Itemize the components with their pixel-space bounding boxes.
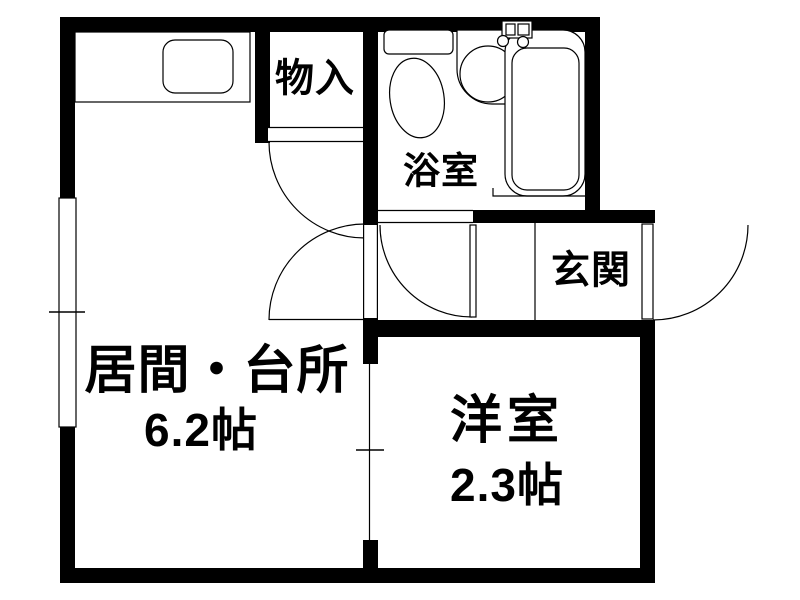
partition-living-western — [356, 364, 384, 540]
living-room-door-swing-arc — [269, 224, 365, 320]
wall-right-lower — [640, 320, 655, 568]
bathtub-outer — [505, 30, 585, 196]
faucet-handle-left — [498, 36, 509, 47]
label-entrance: 玄関 — [551, 252, 631, 291]
front-door-swing-arc — [653, 225, 748, 320]
bathroom-door-swing-arc — [380, 225, 472, 317]
wall-left-upper — [60, 17, 75, 198]
floor-plan-drawing — [0, 0, 800, 600]
wall-western-left-lower-stub — [363, 540, 378, 568]
faucet-handle-right — [518, 37, 529, 48]
wall-storage-left — [255, 32, 270, 143]
wall-center-partition — [363, 32, 378, 225]
wall-entrance-top — [473, 210, 655, 223]
wall-western-top — [363, 320, 655, 337]
toilet — [384, 30, 453, 142]
storage-door-frame — [268, 127, 363, 142]
window-left-wall — [49, 198, 85, 427]
label-storage: 物入 — [275, 60, 355, 99]
wall-left-lower — [60, 427, 75, 583]
label-living-kitchen-area: 6.2帖 — [144, 407, 258, 453]
wall-bathroom-right — [585, 17, 600, 210]
label-western-room: 洋室 — [450, 395, 564, 447]
bathtub — [493, 30, 585, 196]
label-living-kitchen: 居間・台所 — [84, 345, 349, 397]
bathroom-door-frame — [378, 210, 473, 223]
label-bathroom: 浴室 — [403, 153, 479, 190]
kitchen-sink — [163, 40, 233, 93]
kitchen-counter — [75, 32, 250, 102]
storage-door-swing-arc — [269, 142, 365, 238]
toilet-bowl — [384, 54, 450, 141]
toilet-tank — [384, 30, 453, 54]
wall-bottom — [60, 568, 655, 583]
floor-plan: 居間・台所 6.2帖 洋室 2.3帖 物入 浴室 玄関 — [0, 0, 800, 600]
front-door-leaf — [642, 224, 653, 319]
label-western-room-area: 2.3帖 — [450, 462, 564, 508]
bathroom-door-leaf — [470, 225, 476, 317]
living-room-door-opening — [363, 225, 378, 318]
